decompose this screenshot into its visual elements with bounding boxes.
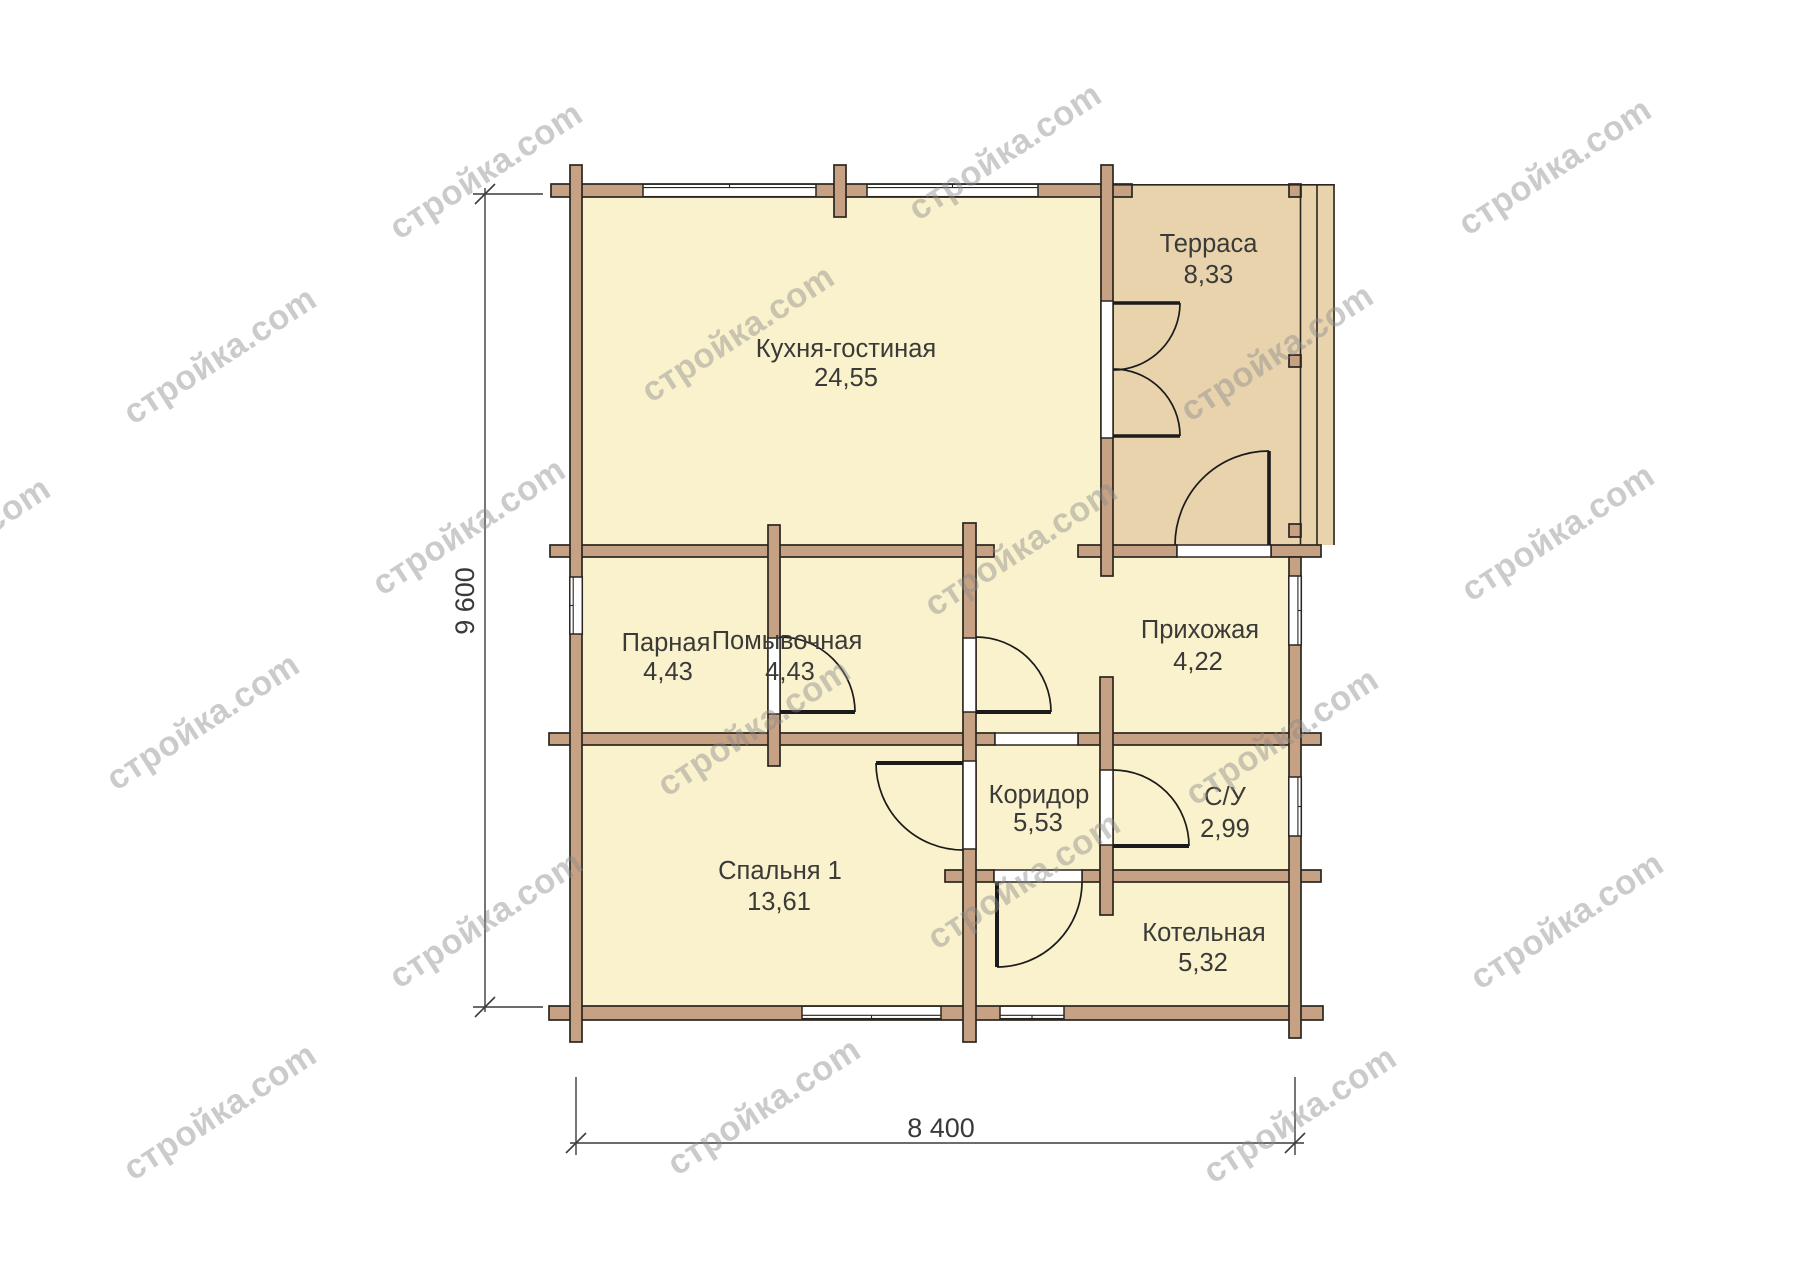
svg-text:13,61: 13,61 bbox=[747, 888, 811, 916]
svg-text:8,33: 8,33 bbox=[1184, 261, 1234, 289]
svg-text:5,53: 5,53 bbox=[1013, 809, 1063, 837]
svg-text:4,22: 4,22 bbox=[1173, 648, 1223, 676]
svg-text:8 400: 8 400 bbox=[907, 1113, 975, 1143]
svg-text:Помывочная: Помывочная bbox=[712, 627, 863, 655]
svg-text:4,43: 4,43 bbox=[643, 658, 693, 686]
svg-text:Парная: Парная bbox=[622, 629, 711, 657]
svg-text:Коридор: Коридор bbox=[989, 781, 1090, 809]
svg-text:24,55: 24,55 bbox=[814, 364, 878, 392]
svg-text:Котельная: Котельная bbox=[1142, 919, 1265, 947]
svg-text:9 600: 9 600 bbox=[450, 567, 480, 635]
svg-text:5,32: 5,32 bbox=[1178, 949, 1228, 977]
svg-text:Прихожая: Прихожая bbox=[1141, 616, 1259, 644]
svg-text:Спальня 1: Спальня 1 bbox=[718, 857, 842, 885]
svg-text:2,99: 2,99 bbox=[1200, 815, 1250, 843]
svg-text:Терраса: Терраса bbox=[1160, 230, 1259, 258]
svg-text:Кухня-гостиная: Кухня-гостиная bbox=[756, 335, 936, 363]
